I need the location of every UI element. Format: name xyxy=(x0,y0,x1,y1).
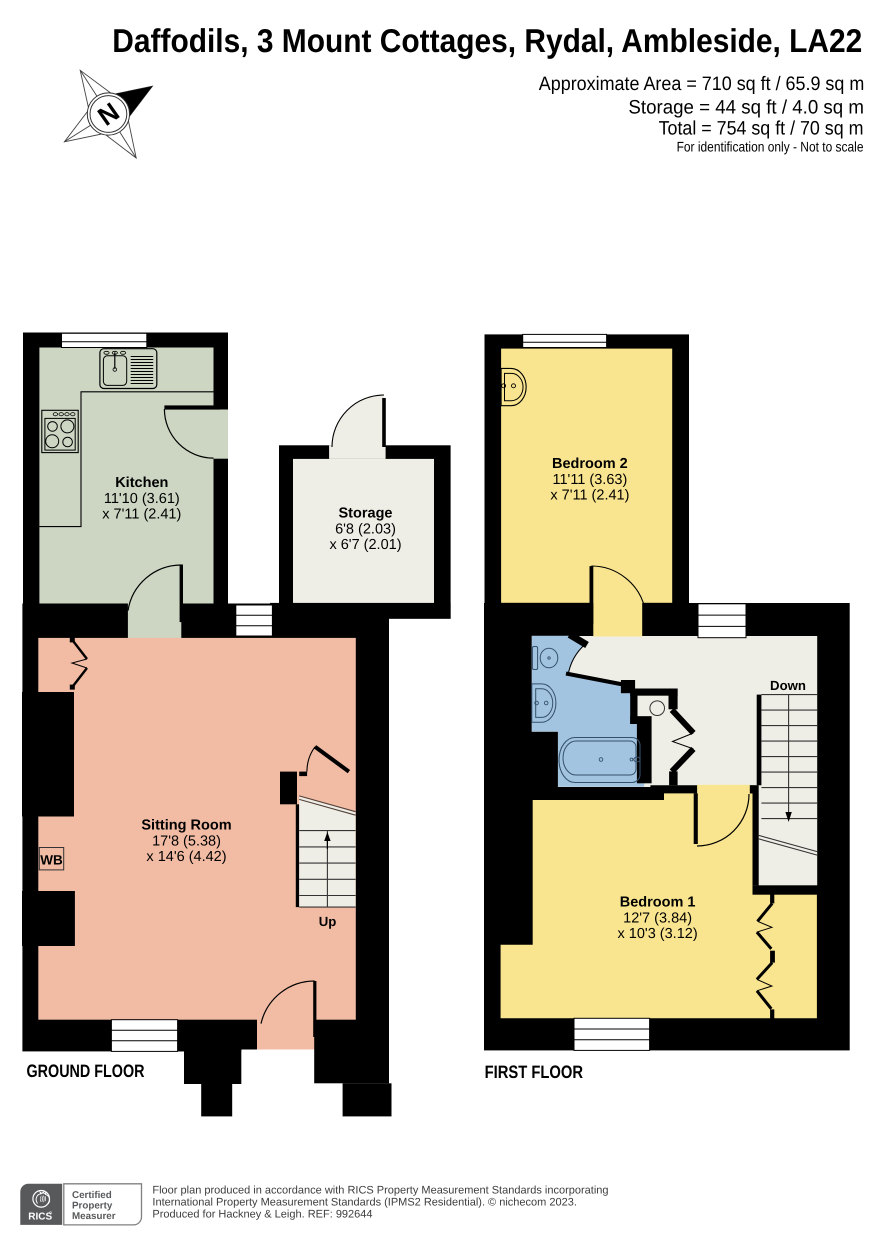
svg-text:Storage = 44 sq ft / 4.0 sq m: Storage = 44 sq ft / 4.0 sq m xyxy=(628,97,864,119)
svg-text:WB: WB xyxy=(40,853,63,868)
svg-text:Kitchen: Kitchen xyxy=(115,475,168,491)
svg-text:Up: Up xyxy=(319,914,337,929)
svg-text:For identification only - Not: For identification only - Not to scale xyxy=(677,139,864,155)
svg-text:17'8 (5.38): 17'8 (5.38) xyxy=(152,833,221,849)
svg-text:6'8 (2.03): 6'8 (2.03) xyxy=(335,521,396,537)
svg-text:x 7'11 (2.41): x 7'11 (2.41) xyxy=(102,507,181,523)
svg-text:Approximate Area = 710 sq ft /: Approximate Area = 710 sq ft / 65.9 sq m xyxy=(539,73,865,95)
svg-text:Total = 754 sq ft / 70 sq m: Total = 754 sq ft / 70 sq m xyxy=(659,117,864,139)
svg-text:11'11 (3.63): 11'11 (3.63) xyxy=(553,472,628,488)
svg-text:Bedroom 2: Bedroom 2 xyxy=(552,456,628,472)
svg-text:x 7'11 (2.41): x 7'11 (2.41) xyxy=(550,488,629,504)
svg-text:11'10 (3.61): 11'10 (3.61) xyxy=(104,491,180,507)
svg-text:RICS: RICS xyxy=(28,1211,52,1222)
svg-text:Produced for Hackney & Leigh.: Produced for Hackney & Leigh. REF: 99264… xyxy=(152,1209,372,1221)
svg-text:x 6'7 (2.01): x 6'7 (2.01) xyxy=(329,537,401,553)
svg-text:Certified: Certified xyxy=(72,1190,112,1201)
svg-text:x 10'3 (3.12): x 10'3 (3.12) xyxy=(618,926,698,942)
svg-text:FIRST FLOOR: FIRST FLOOR xyxy=(485,1062,583,1082)
svg-text:International Property Measure: International Property Measurement Stand… xyxy=(152,1197,576,1209)
svg-text:GROUND FLOOR: GROUND FLOOR xyxy=(27,1061,145,1081)
svg-text:Floor plan produced in accorda: Floor plan produced in accordance with R… xyxy=(152,1185,608,1197)
svg-text:Bedroom 1: Bedroom 1 xyxy=(620,895,696,911)
svg-text:Measurer: Measurer xyxy=(72,1211,116,1222)
svg-text:x 14'6 (4.42): x 14'6 (4.42) xyxy=(146,849,226,865)
svg-text:Property: Property xyxy=(72,1200,113,1211)
svg-text:12'7 (3.84): 12'7 (3.84) xyxy=(623,910,692,926)
svg-text:Down: Down xyxy=(770,678,806,693)
svg-text:Daffodils, 3 Mount Cottages, R: Daffodils, 3 Mount Cottages, Rydal, Ambl… xyxy=(112,22,862,59)
svg-text:Sitting Room: Sitting Room xyxy=(141,818,231,834)
svg-text:Storage: Storage xyxy=(339,506,393,522)
